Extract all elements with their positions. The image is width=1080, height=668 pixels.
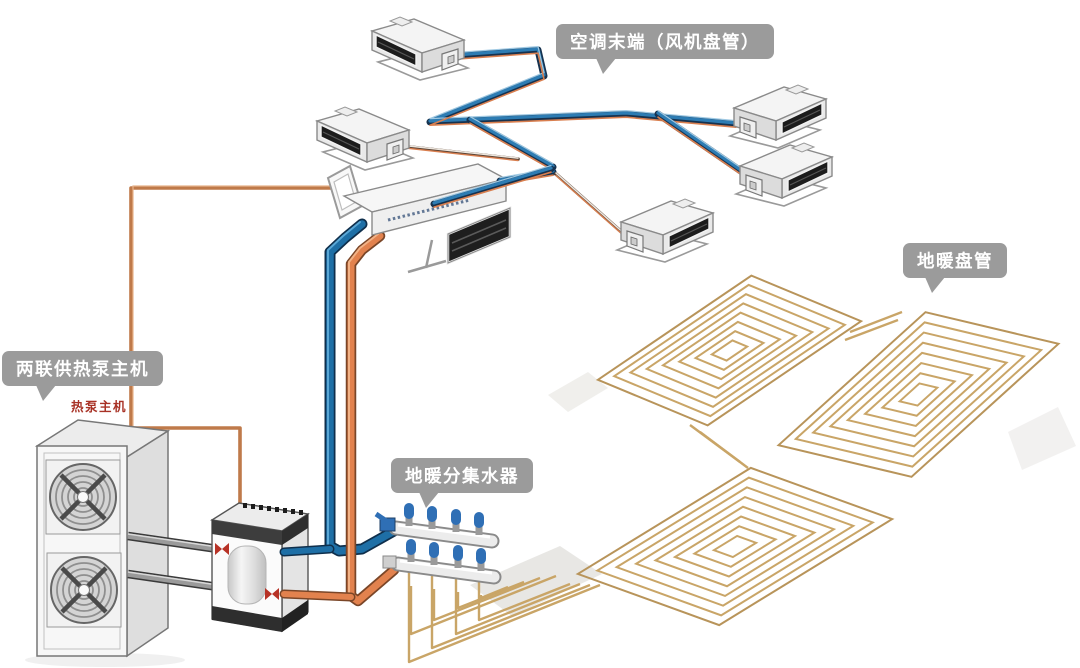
floor-heating-coils [578, 276, 1059, 625]
floor-heating-manifold [376, 508, 494, 577]
fan-coil-unit-4 [736, 143, 832, 206]
label-ac-terminal: 空调末端（风机盘管） [556, 24, 774, 59]
floor-coil-zone-1 [598, 276, 861, 426]
manifold-return-bar [383, 544, 494, 577]
label-manifold: 地暖分集水器 [391, 458, 533, 493]
label-heat-pump: 两联供热泵主机 [2, 351, 163, 386]
fan-coil-unit-3 [730, 85, 826, 148]
fan-coil-unit-1 [372, 17, 468, 80]
floor-slab-shadows [470, 372, 1076, 616]
fan-grille-top [46, 460, 120, 534]
label-heat-pump-main-unit: 热泵主机 [71, 396, 127, 415]
pipe-junction-fcu5 [556, 173, 626, 238]
floor-coil-zone-3 [578, 468, 892, 625]
pipe-fcu2-junction [401, 145, 518, 161]
hvac-system-diagram [0, 0, 1080, 668]
diagram-canvas: 空调末端（风机盘管） 地暖盘管 两联供热泵主机 地暖分集水器 热泵主机 [0, 0, 1080, 668]
fan-coil-unit-5 [617, 199, 713, 262]
ahu-discharge-grille [448, 208, 510, 263]
buffer-tank-hydraulic-module [212, 503, 308, 632]
pipe-branch-junction [470, 117, 553, 171]
fan-grille-bottom [47, 553, 121, 627]
fan-coil-unit-2 [317, 107, 413, 170]
label-floor-coil: 地暖盘管 [903, 243, 1007, 278]
